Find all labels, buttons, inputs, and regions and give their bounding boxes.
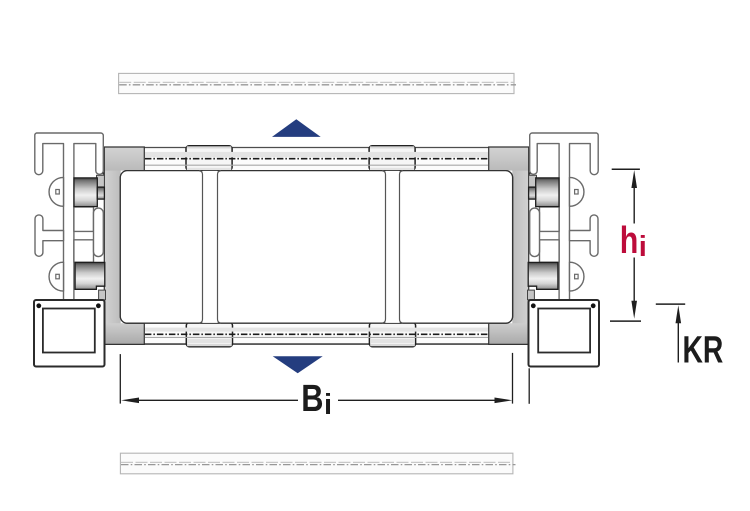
svg-text:KR: KR — [683, 330, 724, 372]
svg-text:i: i — [324, 389, 332, 421]
svg-text:i: i — [639, 231, 647, 263]
svg-text:h: h — [620, 220, 639, 262]
svg-text:B: B — [301, 378, 323, 420]
